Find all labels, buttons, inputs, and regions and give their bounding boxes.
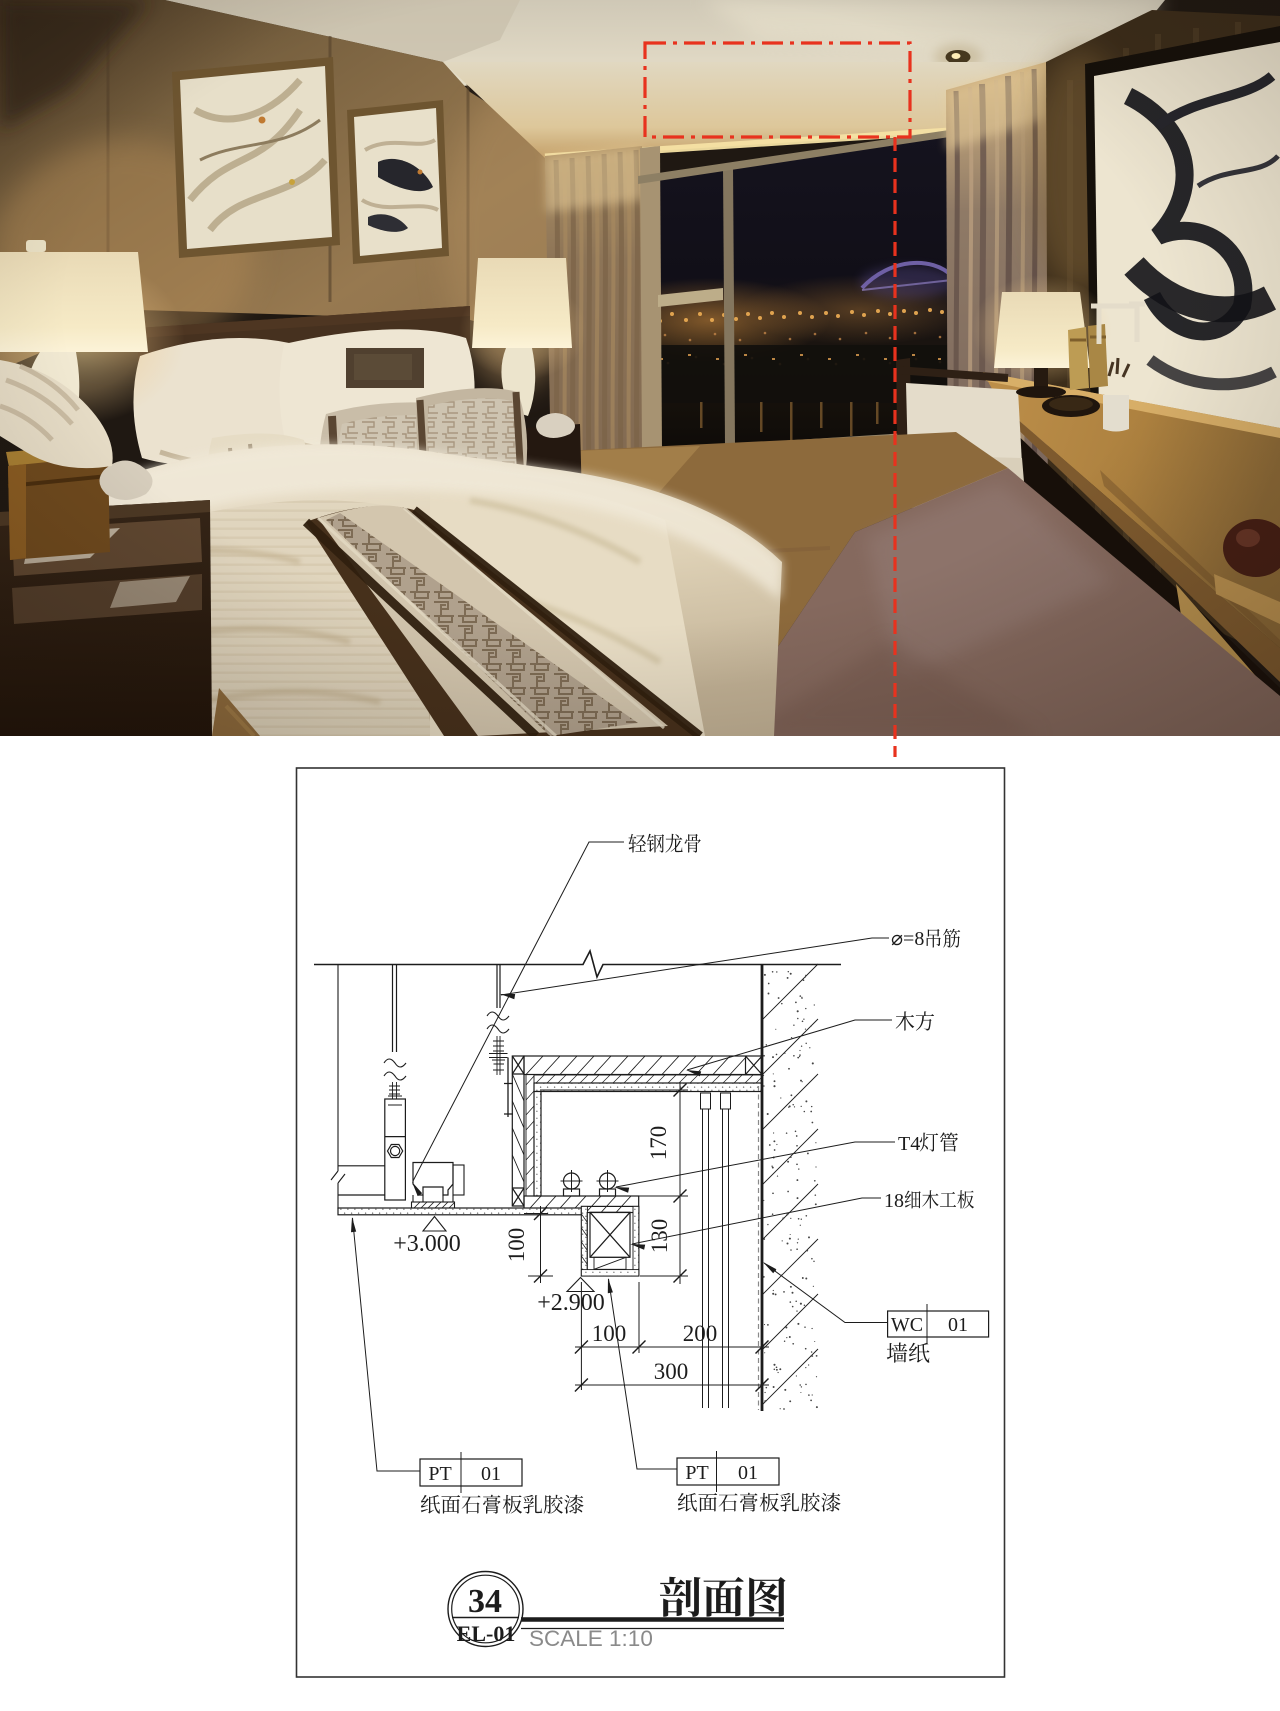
svg-text:PT: PT (428, 1463, 451, 1485)
svg-text:PT: PT (685, 1462, 708, 1484)
svg-text:130: 130 (647, 1219, 672, 1254)
svg-text:+2.900: +2.900 (537, 1290, 605, 1316)
svg-text:18: 18 (884, 1190, 904, 1212)
svg-text:300: 300 (654, 1359, 689, 1384)
svg-text:170: 170 (646, 1126, 671, 1161)
svg-text:01: 01 (948, 1314, 968, 1336)
svg-text:01: 01 (481, 1463, 501, 1485)
svg-text:+3.000: +3.000 (393, 1231, 461, 1257)
svg-text:SCALE 1:10: SCALE 1:10 (529, 1626, 653, 1651)
svg-text:EL-01: EL-01 (457, 1621, 516, 1646)
svg-text:100: 100 (504, 1228, 529, 1263)
svg-text:34: 34 (468, 1583, 502, 1620)
svg-text:⌀=8: ⌀=8 (891, 928, 924, 950)
svg-text:200: 200 (683, 1321, 718, 1346)
svg-text:WC: WC (891, 1314, 923, 1336)
svg-text:01: 01 (738, 1462, 758, 1484)
svg-text:100: 100 (592, 1321, 627, 1346)
svg-text:T4: T4 (898, 1133, 920, 1155)
